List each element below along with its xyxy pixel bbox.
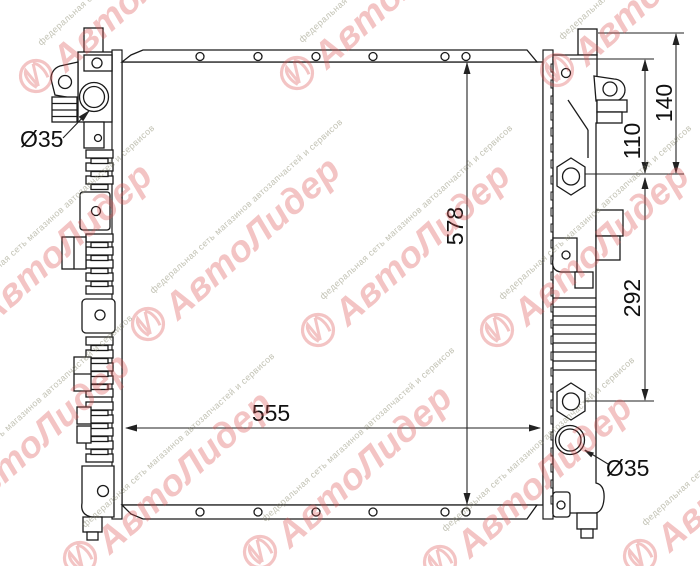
mid-bracket-right: [596, 210, 623, 236]
left-tank: [51, 28, 115, 540]
filler-neck: [84, 28, 103, 53]
dim-inlet-diameter-label: Ø35: [20, 126, 63, 152]
top-mount-bar: [122, 50, 537, 62]
upper-bracket-right: [594, 76, 625, 101]
radiator-core: [122, 62, 543, 505]
radiator-technical-drawing: 578 555 140 110 292 Ø35 Ø35: [0, 0, 700, 566]
dim-pin-to-bolt-label: 110: [619, 123, 645, 160]
mount-pin: [578, 29, 597, 55]
mid-bracket-2: [82, 299, 115, 333]
left-drain-plug: [83, 517, 102, 532]
radiator-drawing-page: 578 555 140 110 292 Ø35 Ø35 федеральная …: [0, 0, 700, 566]
right-drain-plug: [577, 513, 597, 529]
outlet-pipe: [556, 426, 585, 455]
upper-bracket: [51, 62, 78, 99]
dim-core-width-label: 555: [252, 400, 290, 426]
dim-core-height-label: 578: [442, 207, 468, 245]
bottom-mount-bar: [122, 505, 537, 519]
hex-bolt-lower: [557, 383, 585, 420]
hex-bolt-upper: [557, 158, 585, 195]
dim-upper-bracket-label: 140: [651, 84, 677, 122]
mid-bracket-1: [80, 192, 110, 230]
dim-outlet-diameter-label: Ø35: [606, 455, 649, 481]
dim-bolt-span-label: 292: [619, 279, 645, 317]
